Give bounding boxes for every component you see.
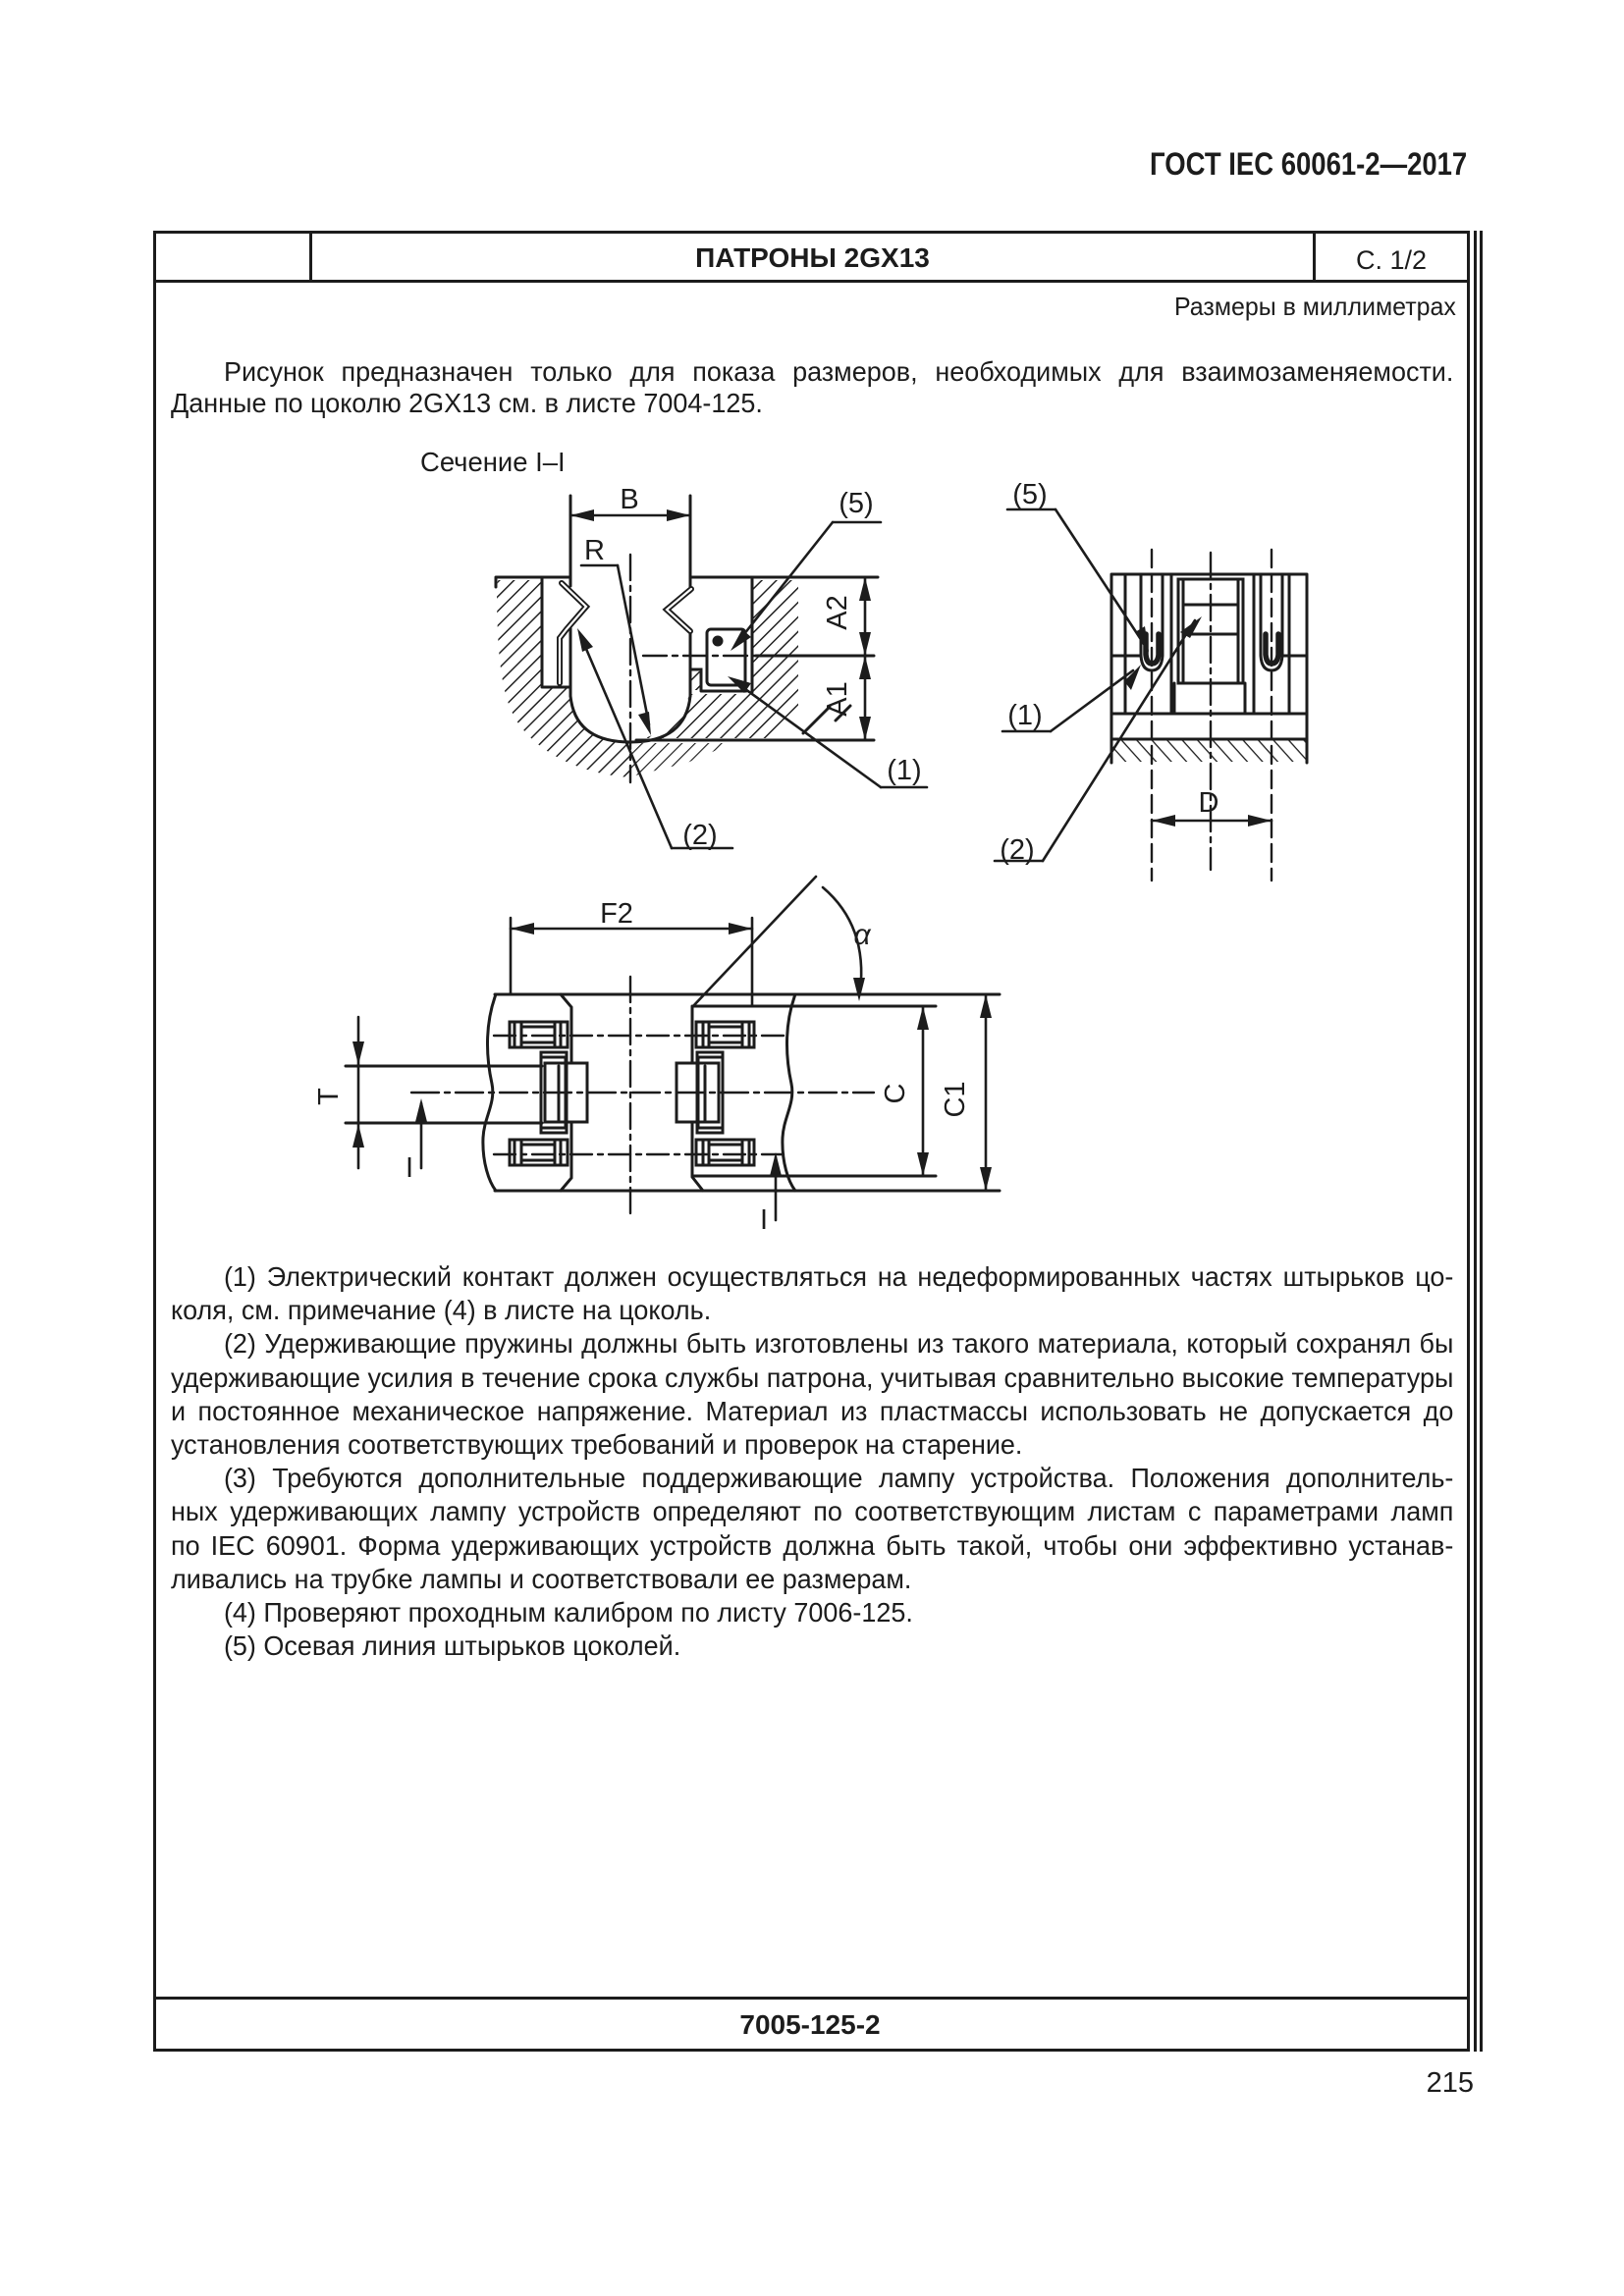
svg-text:(5): (5) — [839, 488, 873, 519]
svg-text:D: D — [1199, 787, 1219, 819]
svg-text:R: R — [584, 535, 605, 566]
svg-text:F2: F2 — [600, 898, 633, 930]
svg-text:I: I — [406, 1152, 413, 1184]
svg-text:A1: A1 — [822, 681, 853, 716]
svg-text:C1: C1 — [940, 1081, 971, 1117]
svg-text:(2): (2) — [682, 820, 717, 851]
svg-text:A2: A2 — [822, 595, 853, 629]
svg-text:(5): (5) — [1012, 479, 1047, 510]
svg-text:B: B — [620, 484, 638, 515]
svg-text:I: I — [760, 1204, 768, 1236]
svg-text:(1): (1) — [887, 755, 921, 786]
svg-text:C: C — [880, 1084, 911, 1104]
svg-text:(1): (1) — [1007, 700, 1042, 731]
svg-text:α: α — [853, 919, 871, 951]
svg-text:Т: Т — [313, 1088, 345, 1105]
